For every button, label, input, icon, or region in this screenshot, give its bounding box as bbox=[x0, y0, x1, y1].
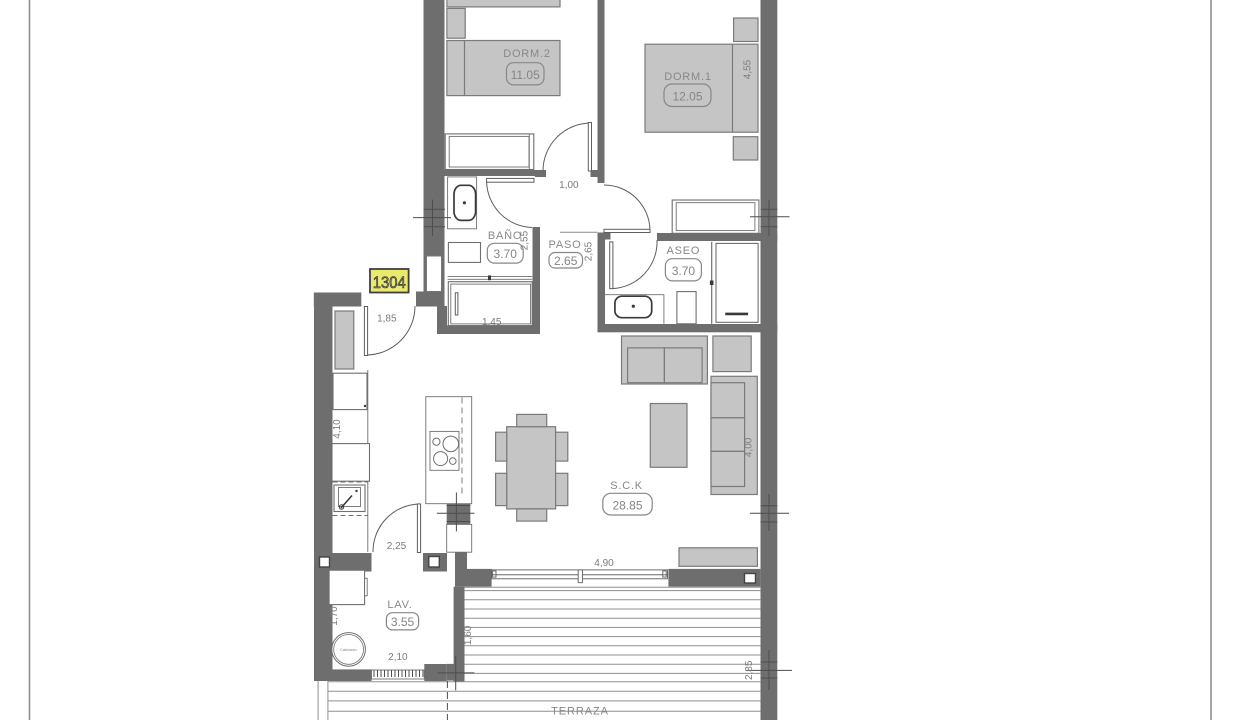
svg-text:DORM.2: DORM.2 bbox=[503, 48, 551, 60]
svg-text:28.85: 28.85 bbox=[612, 499, 642, 513]
svg-text:4,10: 4,10 bbox=[332, 419, 343, 439]
svg-text:2,25: 2,25 bbox=[387, 541, 407, 552]
svg-text:1,70: 1,70 bbox=[329, 606, 340, 626]
svg-text:1,00: 1,00 bbox=[559, 180, 579, 191]
svg-text:1,60: 1,60 bbox=[463, 625, 474, 645]
svg-text:PASO: PASO bbox=[549, 239, 582, 251]
svg-text:12.05: 12.05 bbox=[672, 89, 702, 103]
svg-text:BAÑO: BAÑO bbox=[488, 229, 522, 242]
svg-text:2,85: 2,85 bbox=[744, 660, 755, 680]
svg-text:4,90: 4,90 bbox=[594, 558, 614, 569]
svg-text:3.70: 3.70 bbox=[494, 247, 518, 261]
svg-text:ASEO: ASEO bbox=[667, 245, 701, 257]
svg-text:4,00: 4,00 bbox=[744, 437, 755, 457]
svg-text:4,55: 4,55 bbox=[743, 59, 754, 79]
svg-text:1,45: 1,45 bbox=[482, 317, 502, 328]
svg-text:3.55: 3.55 bbox=[391, 615, 415, 629]
svg-text:2,65: 2,65 bbox=[584, 241, 595, 261]
svg-text:LAV.: LAV. bbox=[387, 599, 412, 611]
svg-text:TERRAZA: TERRAZA bbox=[551, 706, 609, 718]
svg-text:Calentador: Calentador bbox=[340, 648, 357, 652]
svg-text:2.65: 2.65 bbox=[554, 254, 578, 268]
svg-text:11.05: 11.05 bbox=[511, 68, 540, 82]
svg-text:2,55: 2,55 bbox=[520, 230, 531, 250]
svg-text:1,85: 1,85 bbox=[377, 314, 397, 325]
svg-text:3.70: 3.70 bbox=[672, 264, 696, 278]
svg-text:1304: 1304 bbox=[373, 273, 406, 292]
svg-text:2,10: 2,10 bbox=[388, 652, 408, 663]
svg-text:DORM.1: DORM.1 bbox=[664, 71, 712, 83]
svg-text:S.C.K: S.C.K bbox=[610, 480, 643, 492]
